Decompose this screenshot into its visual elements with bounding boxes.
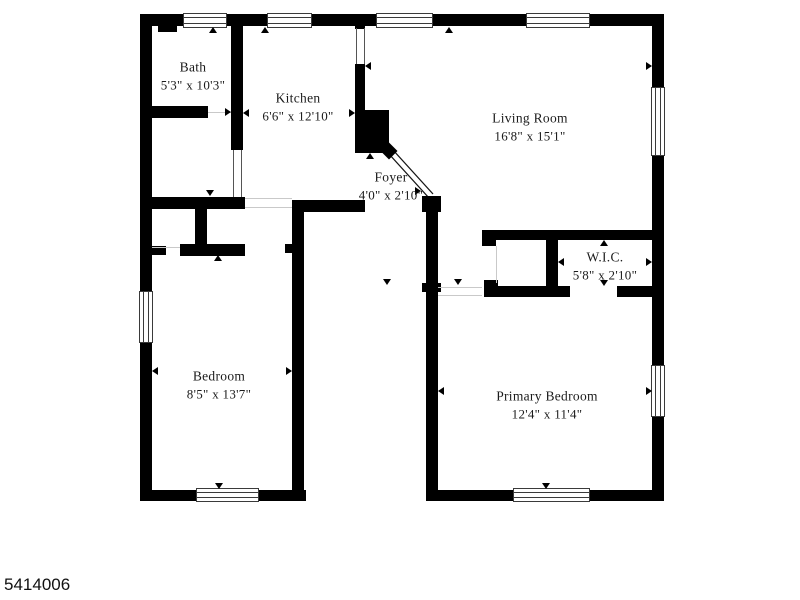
wall-segment	[546, 240, 558, 287]
window-symbol	[376, 13, 433, 28]
window-symbol	[651, 87, 665, 156]
wall-segment	[482, 230, 496, 246]
measure-arrow	[542, 483, 550, 489]
window-symbol	[526, 13, 590, 28]
room-name: W.I.C.	[573, 249, 637, 267]
wall-segment	[292, 200, 365, 212]
room-dimensions: 4'0" x 2'10"	[359, 186, 423, 204]
wall-segment	[426, 196, 438, 501]
measure-arrow	[286, 367, 292, 375]
measure-arrow	[438, 387, 444, 395]
wall-segment	[482, 230, 652, 240]
room-dimensions: 5'8" x 2'10"	[573, 266, 637, 284]
measure-arrow	[261, 27, 269, 33]
wall-segment	[140, 14, 152, 501]
room-name: Bedroom	[187, 368, 251, 386]
measure-arrow	[152, 367, 158, 375]
room-dimensions: 5'3" x 10'3"	[161, 76, 225, 94]
measure-arrow	[225, 108, 231, 116]
window-pane	[377, 17, 432, 24]
construction-line	[152, 247, 180, 248]
measure-arrow	[600, 240, 608, 246]
wall-opening-line	[356, 28, 357, 64]
room-name: Foyer	[359, 169, 423, 187]
measure-arrow	[365, 62, 371, 70]
room-label-primary-bedroom: Primary Bedroom12'4" x 11'4"	[496, 388, 598, 423]
window-symbol	[267, 13, 312, 28]
construction-line	[438, 295, 482, 296]
wall-opening-line	[364, 28, 365, 64]
window-pane	[197, 492, 258, 498]
foyer-diagonal-wall	[0, 0, 800, 600]
measure-arrow	[454, 279, 462, 285]
measure-arrow	[349, 109, 355, 117]
room-name: Bath	[161, 59, 225, 77]
wall-segment	[231, 26, 243, 150]
measure-arrow	[243, 109, 249, 117]
window-pane	[514, 492, 589, 498]
listing-id: 5414006	[4, 575, 70, 595]
measure-arrow	[646, 387, 652, 395]
window-symbol	[196, 488, 259, 502]
construction-line	[496, 246, 497, 283]
window-pane	[184, 17, 226, 24]
wall-segment	[140, 197, 245, 209]
wall-segment	[180, 244, 245, 256]
measure-arrow	[215, 483, 223, 489]
measure-arrow	[646, 62, 652, 70]
wall-segment	[158, 26, 177, 32]
window-symbol	[651, 365, 665, 417]
construction-line	[438, 287, 482, 288]
room-name: Kitchen	[262, 90, 333, 108]
measure-arrow	[206, 190, 214, 196]
room-dimensions: 8'5" x 13'7"	[187, 385, 251, 403]
room-label-living-room: Living Room16'8" x 15'1"	[492, 110, 568, 145]
room-dimensions: 12'4" x 11'4"	[496, 405, 598, 423]
measure-arrow	[366, 153, 374, 159]
wall-segment	[285, 244, 292, 253]
construction-line	[245, 207, 292, 208]
measure-arrow	[214, 255, 222, 261]
room-name: Primary Bedroom	[496, 388, 598, 406]
construction-line	[245, 198, 292, 199]
room-label-wic: W.I.C.5'8" x 2'10"	[573, 249, 637, 284]
wall-opening-line	[233, 150, 234, 197]
window-pane	[143, 292, 149, 342]
window-symbol	[139, 291, 153, 343]
wall-segment	[617, 286, 652, 297]
room-label-bedroom: Bedroom8'5" x 13'7"	[187, 368, 251, 403]
room-name: Living Room	[492, 110, 568, 128]
room-dimensions: 6'6" x 12'10"	[262, 107, 333, 125]
room-label-kitchen: Kitchen6'6" x 12'10"	[262, 90, 333, 125]
measure-arrow	[558, 258, 564, 266]
wall-segment	[422, 196, 441, 212]
measure-arrow	[646, 258, 652, 266]
window-pane	[655, 88, 661, 155]
measure-arrow	[445, 27, 453, 33]
wall-segment	[140, 106, 208, 118]
floor-plan: 5414006 Bath5'3" x 10'3"Kitchen6'6" x 12…	[0, 0, 800, 600]
wall-opening-line	[241, 150, 242, 197]
room-label-bath: Bath5'3" x 10'3"	[161, 59, 225, 94]
window-symbol	[183, 13, 227, 28]
measure-arrow	[383, 279, 391, 285]
wall-segment	[292, 200, 304, 501]
room-label-foyer: Foyer4'0" x 2'10"	[359, 169, 423, 204]
room-dimensions: 16'8" x 15'1"	[492, 127, 568, 145]
window-symbol	[513, 488, 590, 502]
window-pane	[268, 17, 311, 24]
window-pane	[655, 366, 661, 416]
window-pane	[527, 17, 589, 24]
wall-segment	[355, 64, 365, 112]
measure-arrow	[209, 27, 217, 33]
